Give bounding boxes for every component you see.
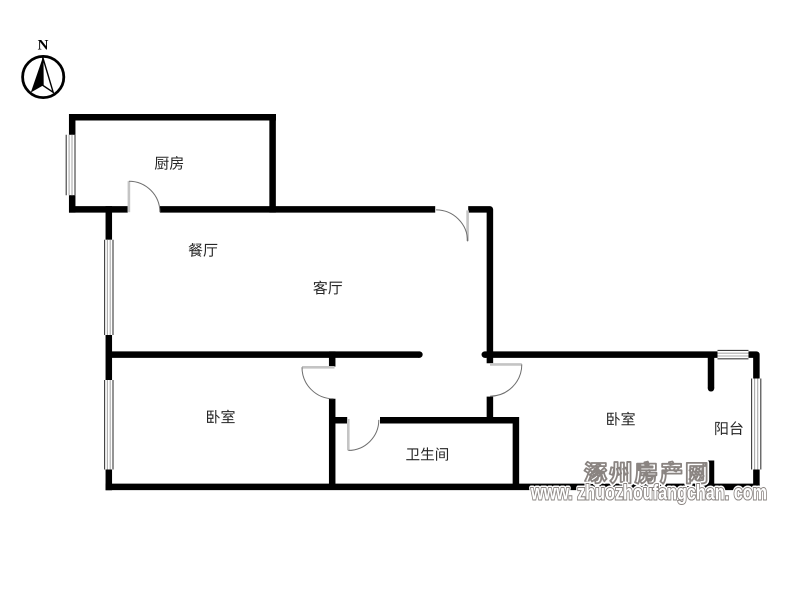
svg-text:N: N bbox=[38, 38, 49, 54]
svg-text:www. zhuozhoufangchan. com: www. zhuozhoufangchan. com bbox=[530, 481, 767, 505]
